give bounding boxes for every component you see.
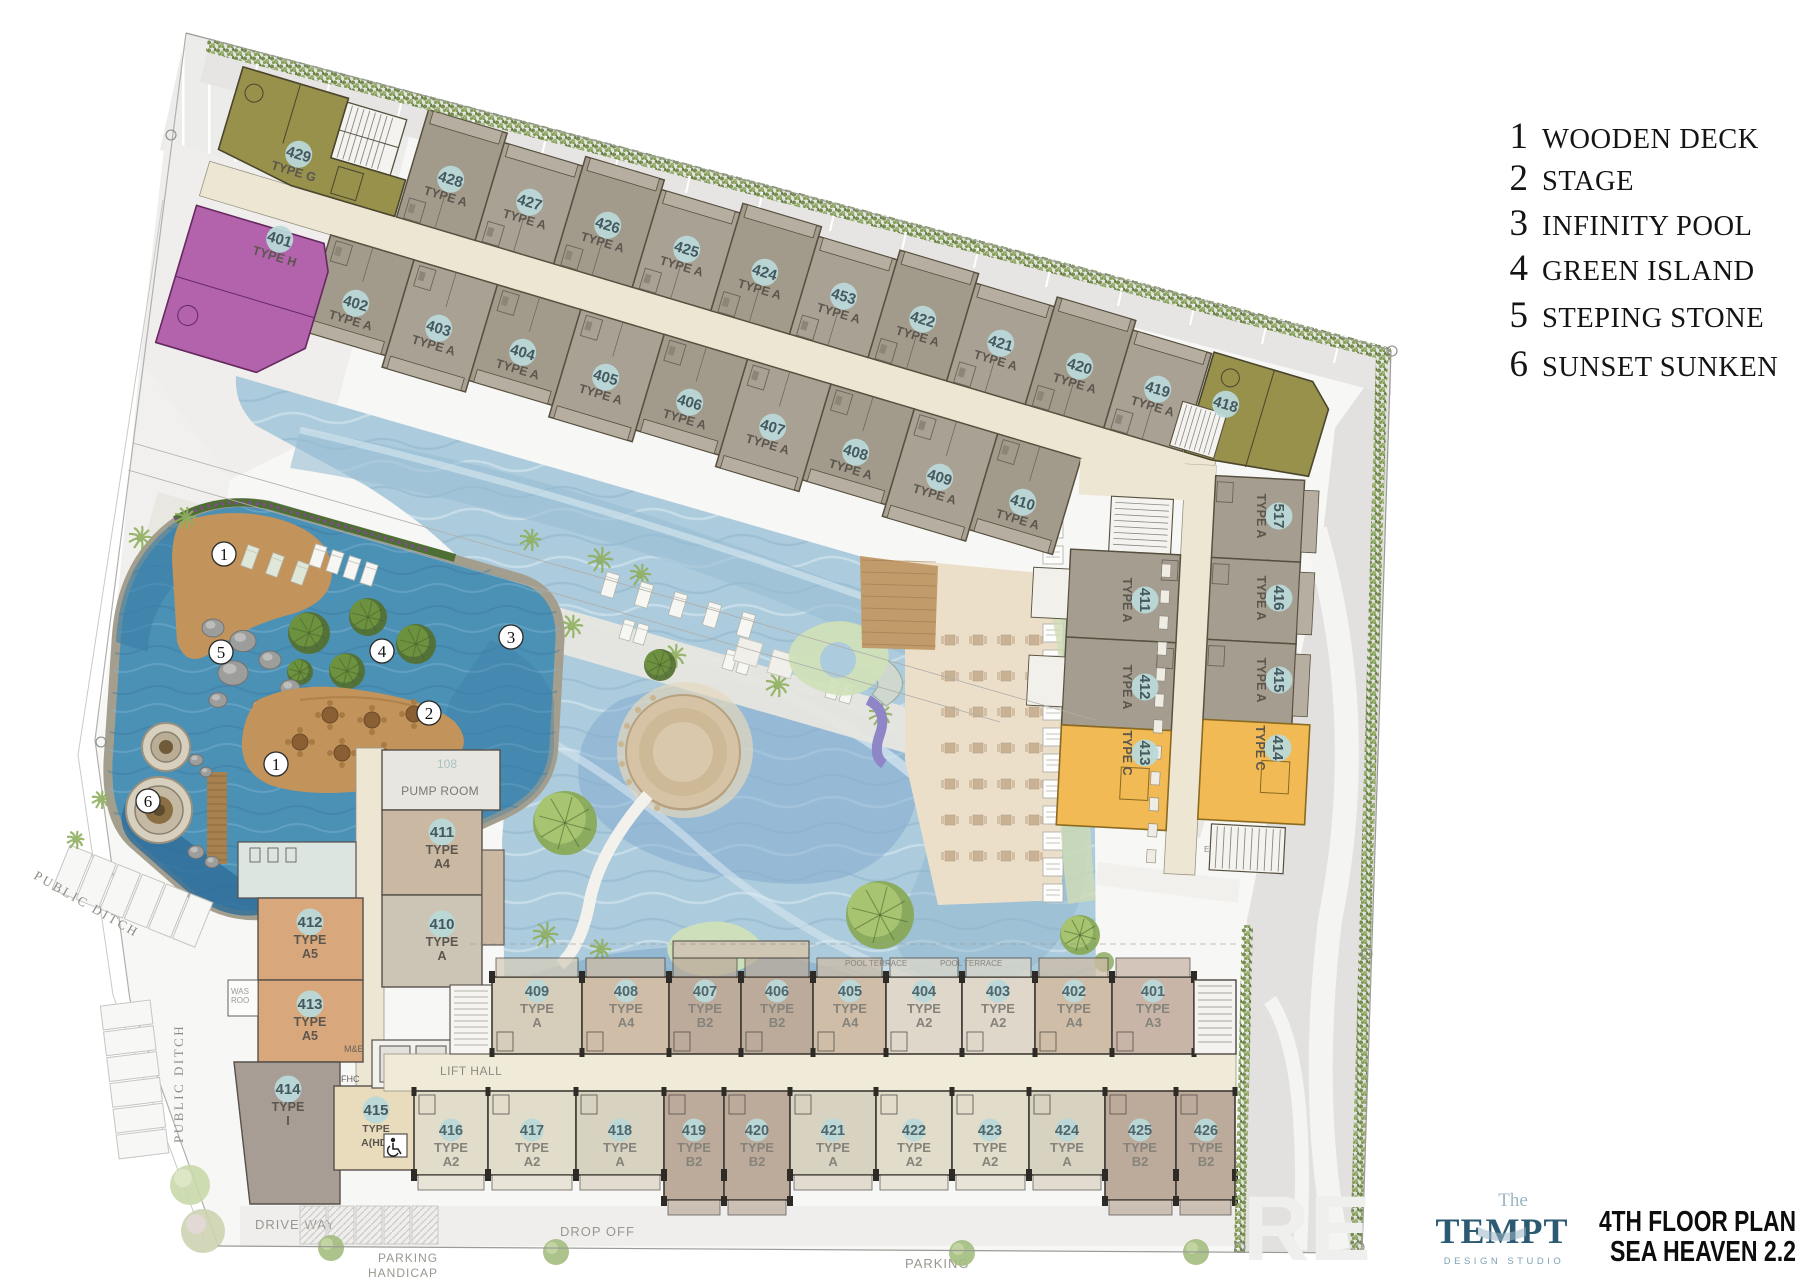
svg-text:TYPE: TYPE (1123, 1140, 1157, 1155)
svg-text:412: 412 (1136, 674, 1153, 699)
svg-text:517: 517 (1270, 503, 1287, 528)
svg-text:A: A (437, 949, 446, 963)
svg-text:TYPE: TYPE (833, 1001, 867, 1016)
svg-text:422: 422 (902, 1123, 926, 1139)
svg-text:A2: A2 (982, 1154, 999, 1169)
svg-text:421: 421 (821, 1123, 845, 1139)
svg-text:TEMPT: TEMPT (1435, 1211, 1568, 1251)
svg-text:A2: A2 (524, 1154, 541, 1169)
svg-text:TYPE: TYPE (1057, 1001, 1091, 1016)
svg-text:426: 426 (1194, 1123, 1218, 1139)
svg-text:DESIGN STUDIO: DESIGN STUDIO (1444, 1256, 1564, 1267)
svg-text:TYPE: TYPE (272, 1100, 305, 1114)
svg-text:B2: B2 (1198, 1154, 1215, 1169)
svg-text:LIFT HALL: LIFT HALL (440, 1064, 502, 1078)
svg-text:ROO: ROO (231, 996, 249, 1005)
svg-text:416: 416 (1270, 585, 1287, 610)
svg-text:TYPE A: TYPE A (1254, 576, 1268, 621)
svg-text:A4: A4 (1066, 1015, 1083, 1030)
svg-text:B2: B2 (686, 1154, 703, 1169)
svg-text:404: 404 (912, 984, 936, 1000)
svg-text:A2: A2 (990, 1015, 1007, 1030)
svg-text:1: 1 (272, 755, 281, 774)
svg-text:3: 3 (507, 628, 516, 647)
svg-text:2: 2 (1510, 158, 1529, 199)
svg-text:GREEN ISLAND: GREEN ISLAND (1542, 256, 1755, 287)
svg-text:TYPE: TYPE (426, 843, 459, 857)
svg-text:409: 409 (525, 984, 549, 1000)
svg-text:406: 406 (765, 984, 789, 1000)
svg-text:4: 4 (1510, 248, 1529, 289)
svg-text:TYPE: TYPE (1189, 1140, 1223, 1155)
svg-text:TYPE: TYPE (362, 1123, 389, 1135)
svg-text:A3: A3 (1145, 1015, 1162, 1030)
svg-text:TYPE: TYPE (897, 1140, 931, 1155)
svg-text:M&E: M&E (344, 1044, 364, 1054)
svg-text:TYPE: TYPE (426, 935, 459, 949)
svg-text:PUMP ROOM: PUMP ROOM (401, 784, 479, 798)
svg-text:4TH FLOOR PLAN: 4TH FLOOR PLAN (1599, 1206, 1796, 1238)
svg-text:4: 4 (378, 642, 387, 661)
svg-text:TYPE A: TYPE A (1254, 494, 1268, 539)
svg-text:411: 411 (1136, 588, 1153, 612)
svg-text:408: 408 (614, 984, 638, 1000)
svg-text:1: 1 (1510, 116, 1529, 157)
svg-text:415: 415 (1270, 667, 1287, 692)
svg-text:SUNSET SUNKEN: SUNSET SUNKEN (1542, 352, 1778, 383)
svg-text:6: 6 (144, 792, 153, 811)
svg-text:407: 407 (693, 984, 717, 1000)
svg-text:POOL TERRACE: POOL TERRACE (845, 959, 907, 968)
svg-text:414: 414 (275, 1081, 301, 1098)
svg-text:TYPE C: TYPE C (1120, 730, 1134, 775)
svg-text:1: 1 (220, 545, 229, 564)
svg-text:TYPE: TYPE (1050, 1140, 1084, 1155)
svg-text:414: 414 (1269, 735, 1286, 761)
svg-text:5: 5 (217, 643, 226, 662)
svg-text:A4: A4 (618, 1015, 635, 1030)
svg-text:B2: B2 (1132, 1154, 1149, 1169)
svg-text:TYPE: TYPE (1136, 1001, 1170, 1016)
svg-text:I: I (286, 1114, 289, 1128)
svg-text:5: 5 (1510, 295, 1529, 336)
svg-text:PUBLIC DITCH: PUBLIC DITCH (171, 1024, 186, 1143)
svg-text:TYPE: TYPE (603, 1140, 637, 1155)
svg-text:419: 419 (682, 1123, 706, 1139)
svg-text:HANDICAP: HANDICAP (368, 1266, 438, 1280)
svg-text:411: 411 (430, 824, 454, 841)
svg-text:TYPE C: TYPE C (1253, 725, 1267, 770)
svg-text:A: A (615, 1154, 625, 1169)
svg-text:415: 415 (363, 1102, 388, 1119)
svg-text:TYPE: TYPE (760, 1001, 794, 1016)
svg-text:403: 403 (986, 984, 1010, 1000)
svg-text:RE: RE (1243, 1178, 1371, 1280)
svg-text:STEPING STONE: STEPING STONE (1542, 303, 1764, 334)
svg-text:SEA HEAVEN 2.2: SEA HEAVEN 2.2 (1610, 1236, 1796, 1268)
svg-text:423: 423 (978, 1123, 1002, 1139)
svg-text:DROP OFF: DROP OFF (560, 1224, 635, 1239)
svg-text:420: 420 (745, 1123, 769, 1139)
svg-text:418: 418 (608, 1123, 632, 1139)
svg-text:POOL TERRACE: POOL TERRACE (940, 959, 1002, 968)
svg-text:TYPE: TYPE (816, 1140, 850, 1155)
svg-text:TYPE A: TYPE A (1254, 658, 1268, 703)
svg-text:416: 416 (439, 1123, 463, 1139)
svg-text:The: The (1498, 1190, 1528, 1211)
svg-text:TYPE: TYPE (434, 1140, 468, 1155)
svg-text:B2: B2 (769, 1015, 786, 1030)
svg-text:TYPE: TYPE (907, 1001, 941, 1016)
svg-text:402: 402 (1062, 984, 1086, 1000)
svg-text:TYPE: TYPE (677, 1140, 711, 1155)
svg-text:6: 6 (1510, 344, 1529, 385)
svg-text:A4: A4 (842, 1015, 859, 1030)
svg-text:B2: B2 (697, 1015, 714, 1030)
svg-text:TYPE: TYPE (609, 1001, 643, 1016)
svg-text:TYPE: TYPE (688, 1001, 722, 1016)
svg-text:TYPE: TYPE (294, 1015, 327, 1029)
svg-text:TYPE: TYPE (740, 1140, 774, 1155)
svg-text:B2: B2 (749, 1154, 766, 1169)
svg-text:3: 3 (1510, 203, 1529, 244)
svg-text:405: 405 (838, 984, 862, 1000)
svg-text:417: 417 (520, 1123, 544, 1139)
svg-text:108: 108 (437, 757, 457, 771)
svg-text:424: 424 (1055, 1123, 1079, 1139)
svg-text:A2: A2 (443, 1154, 460, 1169)
svg-text:A: A (1062, 1154, 1072, 1169)
svg-text:412: 412 (297, 914, 322, 931)
svg-text:413: 413 (1136, 740, 1153, 765)
svg-text:TYPE: TYPE (294, 933, 327, 947)
svg-text:TYPE A: TYPE A (1120, 578, 1134, 623)
svg-text:TYPE: TYPE (520, 1001, 554, 1016)
svg-text:401: 401 (1141, 984, 1165, 1000)
svg-text:A2: A2 (916, 1015, 933, 1030)
svg-text:INFINITY POOL: INFINITY POOL (1542, 211, 1752, 242)
svg-text:TYPE: TYPE (981, 1001, 1015, 1016)
svg-text:A4: A4 (434, 857, 450, 871)
svg-text:410: 410 (429, 916, 454, 933)
svg-text:425: 425 (1128, 1123, 1152, 1139)
svg-text:A2: A2 (906, 1154, 923, 1169)
svg-text:STAGE: STAGE (1542, 166, 1634, 197)
svg-text:413: 413 (297, 996, 322, 1013)
svg-text:TYPE A: TYPE A (1120, 665, 1134, 710)
svg-text:FHC: FHC (341, 1074, 360, 1084)
svg-text:TYPE: TYPE (515, 1140, 549, 1155)
svg-text:TYPE: TYPE (973, 1140, 1007, 1155)
svg-text:A5: A5 (302, 1029, 318, 1043)
svg-text:A: A (828, 1154, 838, 1169)
svg-text:WOODEN DECK: WOODEN DECK (1542, 124, 1759, 155)
svg-text:WAS: WAS (231, 987, 249, 996)
svg-text:PARKING: PARKING (378, 1251, 438, 1265)
svg-text:A: A (532, 1015, 542, 1030)
svg-text:A5: A5 (302, 947, 318, 961)
svg-text:2: 2 (425, 704, 434, 723)
